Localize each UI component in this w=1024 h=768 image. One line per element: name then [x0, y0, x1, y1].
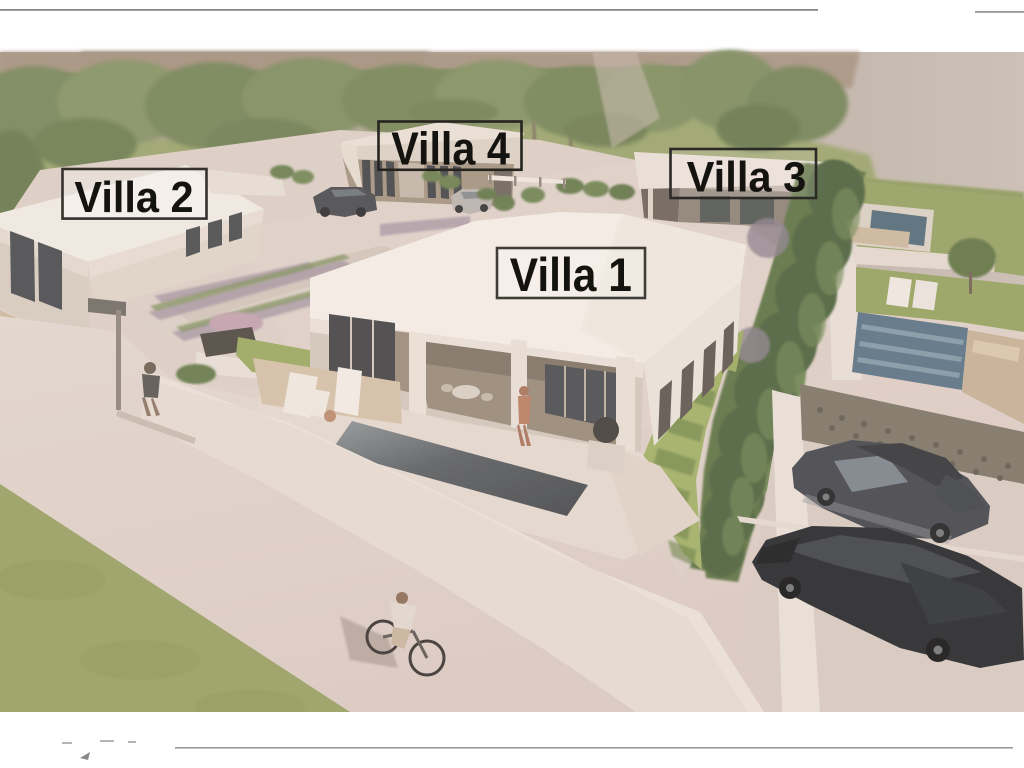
svg-text:Villa 1: Villa 1 [510, 248, 632, 302]
svg-text:Villa 4: Villa 4 [391, 123, 510, 175]
svg-text:Villa 3: Villa 3 [687, 153, 807, 201]
svg-text:Villa 2: Villa 2 [74, 173, 193, 222]
